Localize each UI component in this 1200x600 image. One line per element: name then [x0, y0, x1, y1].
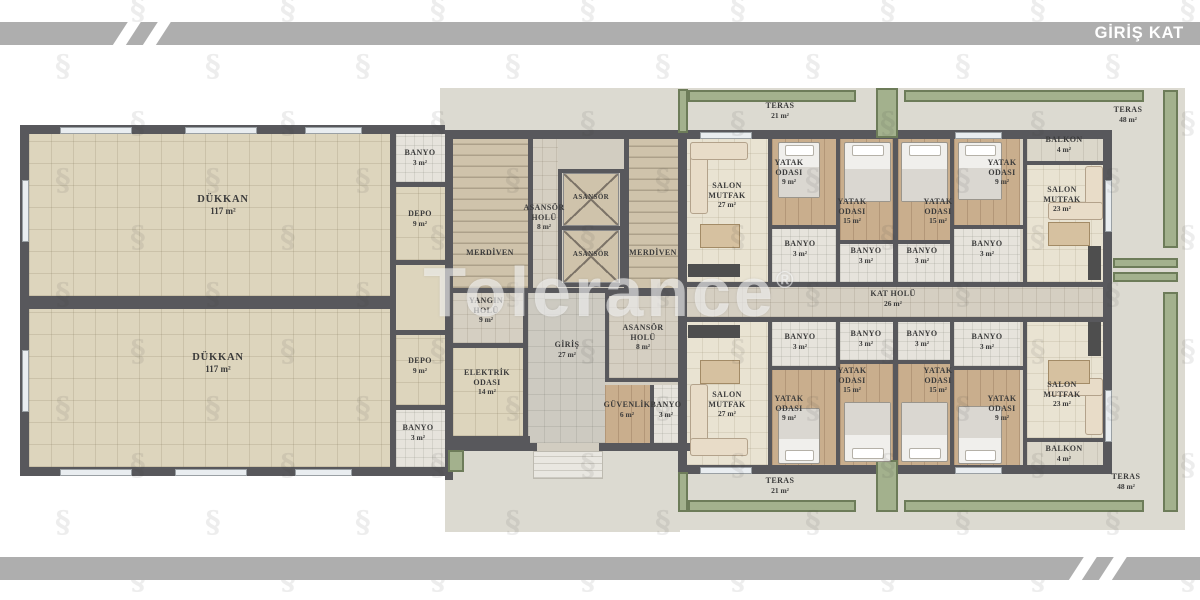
bed [901, 142, 948, 202]
brand-logo-icon: § [955, 49, 971, 84]
planter [1113, 258, 1178, 268]
planter [678, 89, 688, 133]
label-teras-ust-sag: TERAS48 m² [1114, 105, 1143, 124]
window [1105, 390, 1112, 442]
bottom-bar-slash-icon [1096, 557, 1130, 580]
window [700, 132, 752, 139]
label-asansor-holu-1: ASANSÖRHOLÜ8 m² [523, 203, 564, 231]
wall [445, 130, 1112, 139]
top-bar-slash-icon [140, 22, 174, 45]
planter [904, 500, 1144, 512]
wall [450, 436, 530, 443]
bed-blanket [902, 403, 947, 435]
label-teras-ust-sol: TERAS21 m² [766, 101, 795, 120]
label-yatak-odasi-9-a: YATAKODASI9 m² [775, 158, 804, 186]
window [60, 469, 132, 476]
bed-pillow [909, 448, 942, 459]
kitchen-counter [1088, 322, 1101, 356]
wall [950, 366, 1027, 370]
dining-table [1048, 222, 1090, 246]
window [22, 180, 29, 242]
brand-logo-icon: § [55, 49, 71, 84]
label-yatak-odasi-15-d: YATAKODASI15 m² [924, 366, 953, 394]
label-yatak-odasi-15-a: YATAKODASI15 m² [838, 197, 867, 225]
wall [1023, 161, 1103, 165]
label-banyo-c1: BANYO3 m² [785, 332, 816, 351]
brand-logo-icon: § [505, 49, 521, 84]
window [700, 467, 752, 474]
bed-blanket [845, 403, 890, 435]
label-balkon-b: BALKON4 m² [1045, 135, 1082, 154]
wall [836, 240, 897, 244]
label-salon-mutfak-d: SALONMUTFAK23 m² [1043, 380, 1080, 408]
label-guvenlik: GÜVENLİK6 m² [604, 400, 651, 419]
planter [904, 90, 1144, 102]
wall [1023, 438, 1103, 442]
bed [844, 142, 891, 202]
bed [844, 402, 891, 462]
wall [893, 322, 898, 465]
bed-pillow [909, 145, 942, 156]
wall [768, 225, 840, 229]
wall [28, 296, 390, 309]
label-yatak-odasi-9-b: YATAKODASI9 m² [988, 158, 1017, 186]
window [185, 127, 257, 134]
window [955, 132, 1002, 139]
bottom-bar [0, 557, 1200, 580]
label-banyo-a2: BANYO3 m² [851, 246, 882, 265]
label-asansor-1: ASANSÖR [573, 193, 609, 202]
label-elektrik-odasi: ELEKTRİKODASI14 m² [464, 368, 510, 396]
top-bar [0, 22, 1200, 45]
dining-table [700, 360, 740, 384]
wall [950, 225, 1027, 229]
planter [1163, 292, 1178, 512]
label-balkon-d: BALKON4 m² [1045, 444, 1082, 463]
wall [396, 182, 445, 187]
window [305, 127, 362, 134]
tolerance-watermark: Tolerance® [423, 252, 796, 332]
label-yatak-odasi-9-c: YATAKODASI9 m² [775, 394, 804, 422]
entrance-steps [533, 451, 603, 479]
label-yatak-odasi-9-d: YATAKODASI9 m² [988, 394, 1017, 422]
label-yatak-odasi-15-b: YATAKODASI15 m² [924, 197, 953, 225]
bed [901, 402, 948, 462]
bed-pillow [785, 450, 814, 461]
planter [688, 500, 856, 512]
wall [396, 405, 445, 410]
label-dukkan-2: DÜKKAN117 m² [192, 352, 243, 375]
window [955, 467, 1002, 474]
wall [450, 343, 525, 348]
kitchen-counter [1088, 246, 1101, 280]
label-banyo-dukkan-2: BANYO3 m² [403, 423, 434, 442]
label-banyo-d2: BANYO3 m² [907, 329, 938, 348]
floor-plan-page: §§§§§§§§§§§§§§§§§§§§§§§§§§§§§§§§§§§§§§§§… [0, 0, 1200, 600]
bed-pillow [965, 450, 996, 461]
label-banyo-d1: BANYO3 m² [972, 332, 1003, 351]
brand-logo-icon: § [55, 505, 71, 540]
planter [448, 450, 464, 472]
dining-table [700, 224, 740, 248]
label-teras-alt-sag: TERAS48 m² [1112, 472, 1141, 491]
brand-logo-icon: § [205, 49, 221, 84]
label-banyo-b1: BANYO3 m² [972, 239, 1003, 258]
label-banyo-merkez: BANYO3 m² [651, 400, 682, 419]
bed-pillow [852, 145, 885, 156]
sofa [690, 142, 748, 160]
bed-pillow [785, 145, 814, 156]
window [175, 469, 247, 476]
wall [1023, 322, 1027, 465]
label-kat-holu: KAT HOLÜ26 m² [870, 289, 915, 308]
label-teras-alt-sol: TERAS21 m² [766, 476, 795, 495]
wall [599, 443, 690, 451]
label-salon-mutfak-b: SALONMUTFAK23 m² [1043, 185, 1080, 213]
window [22, 350, 29, 412]
label-yatak-odasi-15-c: YATAKODASI15 m² [838, 366, 867, 394]
wall [836, 360, 897, 364]
label-depo-2: DEPO9 m² [408, 356, 432, 375]
window [60, 127, 132, 134]
label-banyo-c2: BANYO3 m² [851, 329, 882, 348]
brand-logo-icon: § [655, 49, 671, 84]
wall [558, 226, 624, 230]
label-banyo-dukkan-1: BANYO3 m² [405, 148, 436, 167]
label-dukkan-1: DÜKKAN117 m² [197, 194, 248, 217]
planter [876, 88, 898, 138]
wall [605, 378, 681, 382]
bottom-bar-slash-icon [1066, 557, 1100, 580]
label-banyo-b2: BANYO3 m² [907, 246, 938, 265]
brand-logo-icon: § [355, 505, 371, 540]
room-dukkan-2 [29, 309, 390, 467]
brand-logo-icon: § [205, 505, 221, 540]
bed-pillow [852, 448, 885, 459]
wall [768, 322, 772, 465]
bed-pillow [965, 145, 996, 156]
planter [1163, 90, 1178, 248]
floor-title: GİRİŞ KAT [1095, 22, 1184, 45]
planter [678, 472, 688, 512]
label-salon-mutfak-c: SALONMUTFAK27 m² [708, 390, 745, 418]
brand-logo-icon: § [805, 49, 821, 84]
registered-mark-icon: ® [776, 267, 797, 294]
wall [893, 240, 954, 244]
wall [893, 139, 898, 282]
brand-logo-icon: § [1105, 49, 1121, 84]
wall [768, 366, 840, 370]
brand-logo-icon: § [355, 49, 371, 84]
label-giris: GİRİŞ27 m² [555, 340, 580, 359]
window [295, 469, 352, 476]
label-depo-1: DEPO9 m² [408, 209, 432, 228]
watermark-text: Tolerance [423, 253, 776, 331]
wall [558, 169, 624, 173]
planter [876, 460, 898, 512]
label-salon-mutfak-a: SALONMUTFAK27 m² [708, 181, 745, 209]
window [1105, 180, 1112, 232]
wall [893, 360, 954, 364]
top-bar-slash-icon [110, 22, 144, 45]
planter [1113, 272, 1178, 282]
sofa [690, 438, 748, 456]
